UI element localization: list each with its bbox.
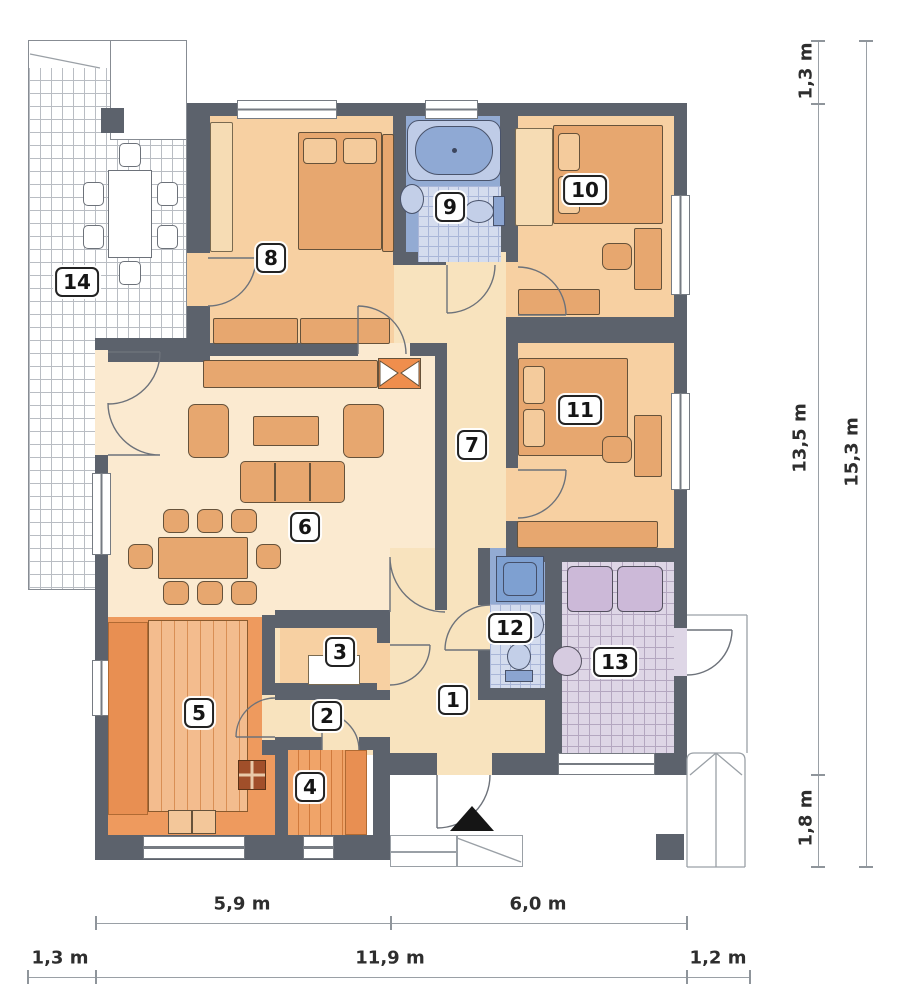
pillow xyxy=(303,138,337,164)
dim-line-right-outer xyxy=(866,40,867,867)
boiler xyxy=(552,646,582,676)
room-label-1: 1 xyxy=(438,685,468,715)
terrace-chair xyxy=(83,225,104,249)
pillow xyxy=(523,366,545,404)
dim-label-right-total: 15,3 m xyxy=(842,417,863,486)
dim-tick xyxy=(686,970,688,984)
dim-label-bottom-side: 1,2 m xyxy=(690,948,747,969)
window xyxy=(303,836,334,859)
window xyxy=(671,195,690,295)
shower-tray xyxy=(503,562,537,596)
room-label-11: 11 xyxy=(558,395,602,425)
door-opening xyxy=(358,343,410,356)
terrace-table xyxy=(108,170,152,258)
dining-chair xyxy=(163,581,189,605)
wall xyxy=(275,737,322,750)
door-opening xyxy=(506,468,518,521)
dryer xyxy=(617,566,663,612)
terrace-chair xyxy=(119,261,141,285)
bathtub-drain xyxy=(452,148,457,153)
dim-label-bottom-left: 5,9 m xyxy=(214,894,271,915)
window xyxy=(558,753,655,775)
dresser xyxy=(518,289,600,315)
door-opening xyxy=(262,695,275,740)
grill-icon xyxy=(101,108,124,133)
pillow xyxy=(343,138,377,164)
dim-tick xyxy=(95,970,97,984)
wall xyxy=(478,548,490,605)
armchair xyxy=(343,404,384,458)
dim-line-right-inner xyxy=(818,40,819,867)
sofa-seat-line xyxy=(274,463,276,501)
wall xyxy=(506,317,687,343)
room-label-10: 10 xyxy=(563,175,607,205)
window xyxy=(92,473,111,555)
room-label-2: 2 xyxy=(312,701,342,731)
door-arc xyxy=(687,630,732,675)
wall xyxy=(435,356,447,610)
sideboard xyxy=(517,521,658,548)
room-label-9: 9 xyxy=(435,192,465,222)
dim-tick xyxy=(95,916,97,930)
entrance-arrow-icon xyxy=(450,806,494,831)
dining-chair xyxy=(231,581,257,605)
window xyxy=(237,100,337,119)
pillow xyxy=(558,133,580,171)
sink xyxy=(400,184,424,214)
dim-tick xyxy=(811,774,825,776)
window xyxy=(425,100,478,119)
desk-chair xyxy=(602,436,632,463)
dim-label-right-porch: 1,8 m xyxy=(796,790,817,847)
wall xyxy=(359,737,390,750)
dim-tick xyxy=(811,40,825,42)
sideboard xyxy=(203,360,378,388)
bedside-cabinet xyxy=(382,134,394,252)
toilet xyxy=(464,200,494,223)
terrace-chair xyxy=(119,143,141,167)
dim-tick xyxy=(686,916,688,930)
door-opening xyxy=(322,737,359,750)
room-label-7: 7 xyxy=(457,430,487,460)
terrace-chair xyxy=(83,182,104,206)
pillow xyxy=(523,409,545,447)
window xyxy=(143,836,245,859)
door-opening xyxy=(506,262,518,317)
wall xyxy=(187,103,210,362)
dim-tick xyxy=(859,866,873,868)
room-label-13: 13 xyxy=(593,647,637,677)
dim-tick xyxy=(27,970,29,984)
step-line xyxy=(390,851,456,853)
dim-label-bottom-house: 11,9 m xyxy=(355,948,424,969)
side-porch-outline xyxy=(687,615,747,867)
dining-chair xyxy=(197,581,223,605)
wall xyxy=(262,615,275,695)
shelf xyxy=(345,750,367,835)
kitchen-sink xyxy=(168,810,216,834)
door-arc xyxy=(437,775,490,828)
window xyxy=(671,393,690,490)
floor-plan: 1 2 3 4 5 6 7 8 9 10 11 12 13 14 1,3 m 1… xyxy=(0,0,898,1000)
door-opening xyxy=(187,253,210,306)
wall xyxy=(275,610,390,628)
room-label-4: 4 xyxy=(295,772,325,802)
toilet xyxy=(507,643,531,670)
door-opening xyxy=(95,350,108,455)
room-label-8: 8 xyxy=(256,243,286,273)
dining-chair xyxy=(128,544,153,569)
sofa xyxy=(240,461,345,503)
dim-label-bottom-terrace: 1,3 m xyxy=(32,948,89,969)
wall xyxy=(262,740,275,755)
step-divider xyxy=(456,835,458,867)
room-label-12: 12 xyxy=(488,613,532,643)
dim-tick xyxy=(390,916,392,930)
door-opening xyxy=(674,628,687,676)
dim-tick xyxy=(859,40,873,42)
dim-tick xyxy=(749,970,751,984)
dim-line-bottom-outer xyxy=(27,977,750,978)
dresser xyxy=(300,318,390,344)
wall xyxy=(275,683,390,700)
door-opening xyxy=(437,753,492,775)
armchair xyxy=(188,404,229,458)
dim-label-bottom-right: 6,0 m xyxy=(510,894,567,915)
desk xyxy=(634,228,662,290)
side-porch-roof xyxy=(690,753,742,867)
coffee-table xyxy=(253,416,319,446)
dining-chair xyxy=(256,544,281,569)
porch-column xyxy=(656,834,684,860)
fireplace xyxy=(378,358,421,389)
room-label-14: 14 xyxy=(55,267,99,297)
dining-chair xyxy=(197,509,223,533)
stove-icon xyxy=(238,760,266,790)
room-label-5: 5 xyxy=(184,698,214,728)
kitchen-counter xyxy=(108,622,148,815)
dim-label-right-house: 13,5 m xyxy=(790,403,811,472)
toilet-tank xyxy=(505,670,533,682)
dim-tick xyxy=(811,103,825,105)
desk xyxy=(634,415,662,477)
wall xyxy=(478,688,562,700)
toilet-tank xyxy=(493,196,505,226)
wall xyxy=(373,737,390,860)
room-label-3: 3 xyxy=(325,637,355,667)
dresser xyxy=(213,318,298,344)
desk-chair xyxy=(602,243,632,270)
sofa-seat-line xyxy=(309,463,311,501)
wardrobe xyxy=(210,122,233,252)
wardrobe xyxy=(515,128,553,226)
wall xyxy=(275,737,288,843)
washing-machine xyxy=(567,566,613,612)
dining-chair xyxy=(231,509,257,533)
dining-chair xyxy=(163,509,189,533)
dim-tick xyxy=(811,866,825,868)
door-opening xyxy=(377,643,390,690)
terrace-chair xyxy=(157,225,178,249)
dining-table xyxy=(158,537,248,579)
dim-label-right-top: 1,3 m xyxy=(796,43,817,100)
room-label-6: 6 xyxy=(290,512,320,542)
terrace-chair xyxy=(157,182,178,206)
